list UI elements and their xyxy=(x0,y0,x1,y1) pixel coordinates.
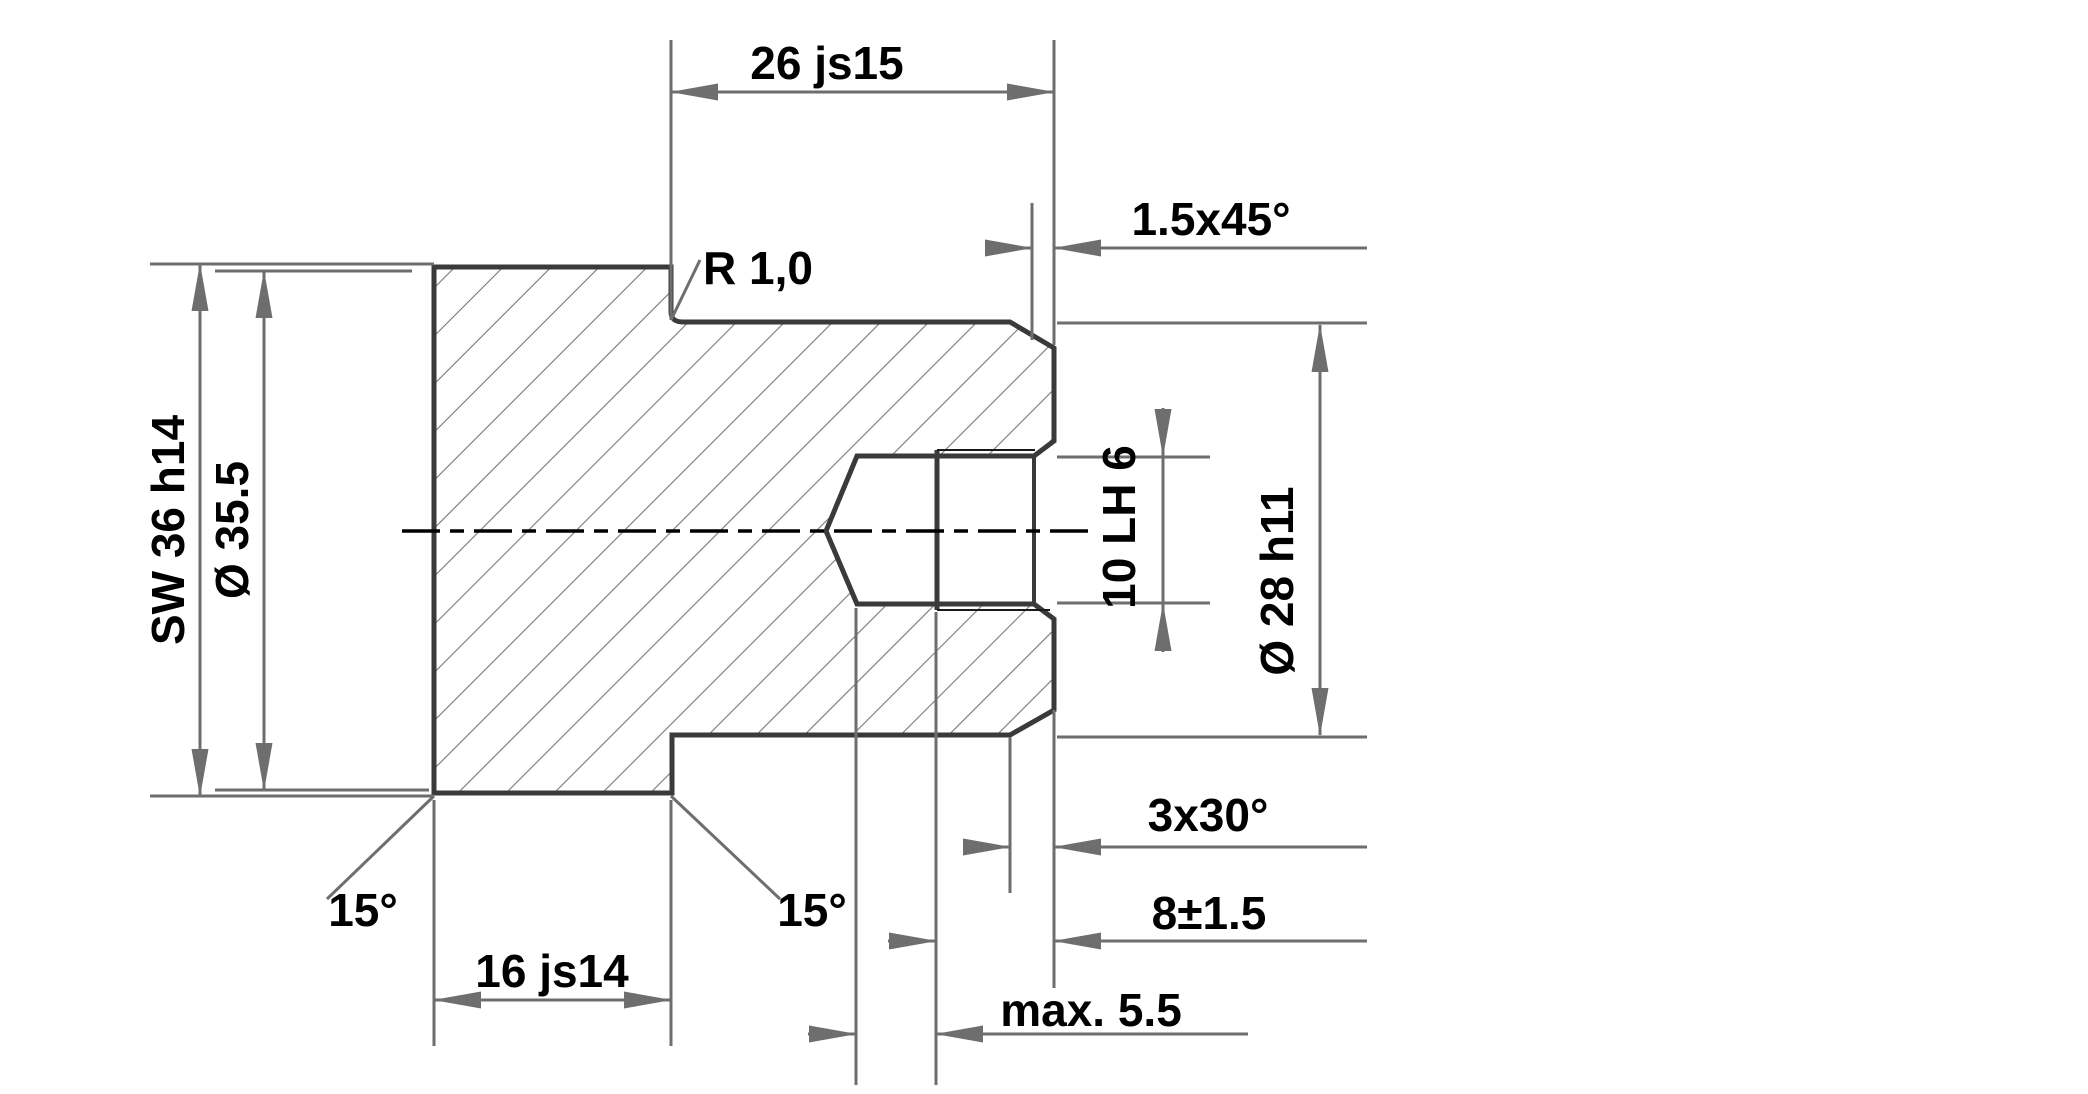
drawing-canvas: 26 js15 1.5x45° R 1,0 SW 36 h14 Ø 35.5 1… xyxy=(0,0,2088,1094)
dim-label-fillet-radius: R 1,0 xyxy=(703,242,813,294)
dim-rear-chamfer: 3x30° xyxy=(963,710,1367,988)
dim-label-hex-length: 16 js14 xyxy=(475,945,629,997)
dim-label-overall-length: 26 js15 xyxy=(750,37,903,89)
dim-label-drill-overrun: max. 5.5 xyxy=(1000,984,1182,1036)
dim-label-rear-chamfer: 3x30° xyxy=(1148,789,1269,841)
dim-label-thread-depth: 8±1.5 xyxy=(1152,887,1267,939)
leader-line xyxy=(671,796,780,899)
dim-front-chamfer: 1.5x45° xyxy=(985,193,1367,340)
part-section xyxy=(402,267,1088,793)
dim-label-turned-diameter: Ø 35.5 xyxy=(206,461,258,599)
dim-hex-chamfer-left: 15° xyxy=(327,796,434,936)
dim-hex-length: 16 js14 xyxy=(434,800,671,1046)
dim-label-front-chamfer: 1.5x45° xyxy=(1131,193,1290,245)
dim-hex-chamfer-right: 15° xyxy=(671,796,847,936)
dim-label-thread-size: 10 LH 6 xyxy=(1093,445,1145,609)
dim-turned-diameter: Ø 35.5 xyxy=(206,271,429,790)
leader-line xyxy=(671,260,700,320)
dim-label-hex-width: SW 36 h14 xyxy=(142,415,194,646)
dim-label-shank-diameter: Ø 28 h11 xyxy=(1251,486,1303,675)
dim-fillet-radius: R 1,0 xyxy=(671,242,813,320)
dim-hex-width: SW 36 h14 xyxy=(142,264,434,796)
dim-label-hex-chamfer-left: 15° xyxy=(328,884,398,936)
dim-label-hex-chamfer-right: 15° xyxy=(777,884,847,936)
dim-overall-length: 26 js15 xyxy=(671,37,1054,345)
